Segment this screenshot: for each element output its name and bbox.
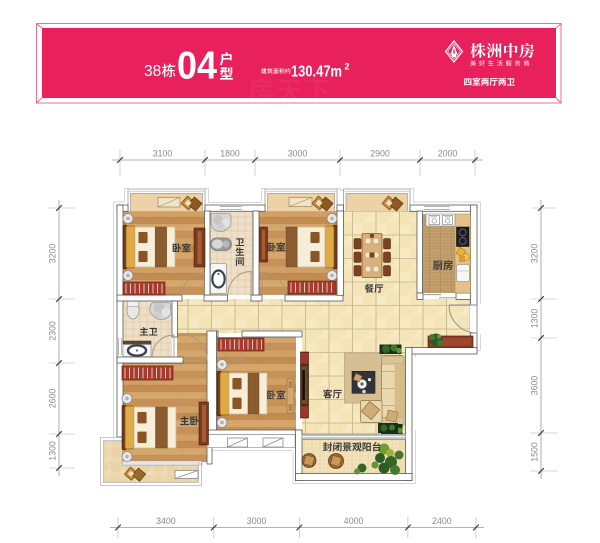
svg-text:04: 04 (177, 45, 217, 88)
svg-text:1300: 1300 (530, 309, 540, 329)
svg-text:4000: 4000 (344, 516, 364, 526)
svg-text:2300: 2300 (48, 321, 58, 341)
svg-text:3100: 3100 (153, 149, 173, 159)
svg-text:3200: 3200 (48, 244, 58, 264)
svg-text:3000: 3000 (288, 149, 308, 159)
svg-text:2400: 2400 (432, 516, 452, 526)
svg-text:2600: 2600 (48, 389, 58, 409)
svg-text:130.47m: 130.47m (291, 64, 342, 81)
svg-text:2000: 2000 (438, 149, 458, 159)
svg-text:1300: 1300 (48, 441, 58, 461)
svg-text:1800: 1800 (220, 149, 240, 159)
svg-text:3200: 3200 (530, 244, 540, 264)
svg-text:1500: 1500 (530, 442, 540, 462)
svg-text:3000: 3000 (247, 516, 267, 526)
svg-text:38: 38 (144, 63, 161, 80)
svg-text:2900: 2900 (370, 149, 390, 159)
svg-text:2: 2 (345, 62, 350, 72)
svg-text:3400: 3400 (156, 516, 176, 526)
svg-text:3600: 3600 (530, 376, 540, 396)
